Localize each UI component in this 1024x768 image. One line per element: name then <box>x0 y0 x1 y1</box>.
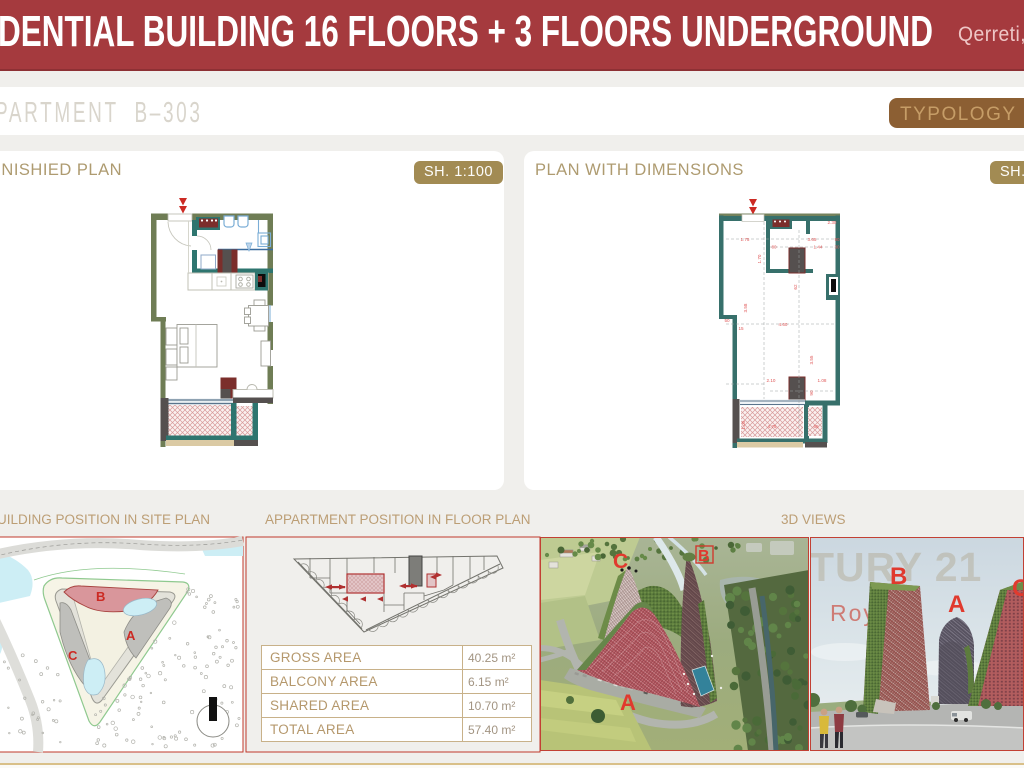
svg-text:A: A <box>620 690 636 715</box>
svg-text:30: 30 <box>834 245 840 250</box>
svg-text:1.44: 1.44 <box>814 245 823 250</box>
svg-text:65: 65 <box>813 424 819 429</box>
svg-text:2.30: 2.30 <box>828 220 837 225</box>
svg-text:1.75: 1.75 <box>741 237 750 242</box>
svg-text:4.60: 4.60 <box>779 322 788 327</box>
svg-text:3.55: 3.55 <box>809 355 814 364</box>
svg-text:1.05: 1.05 <box>741 420 746 429</box>
svg-text:1.08: 1.08 <box>818 378 827 383</box>
svg-text:3.65: 3.65 <box>808 237 817 242</box>
svg-text:C: C <box>68 648 78 663</box>
svg-text:C: C <box>613 550 628 573</box>
svg-text:90: 90 <box>834 237 840 242</box>
svg-text:B: B <box>890 563 907 590</box>
svg-text:3.58: 3.58 <box>743 303 748 312</box>
svg-text:62: 62 <box>793 284 798 290</box>
svg-text:A: A <box>948 591 965 618</box>
svg-text:B: B <box>96 589 105 604</box>
svg-text:1.70: 1.70 <box>757 254 762 263</box>
svg-text:50: 50 <box>724 318 730 323</box>
svg-text:B: B <box>698 548 710 565</box>
svg-text:90: 90 <box>809 390 814 396</box>
svg-text:A: A <box>126 628 136 643</box>
svg-text:4.75: 4.75 <box>768 424 777 429</box>
svg-text:15: 15 <box>738 326 744 331</box>
svg-text:2.10: 2.10 <box>767 378 776 383</box>
svg-text:80: 80 <box>771 245 777 250</box>
svg-text:C: C <box>1012 575 1024 602</box>
